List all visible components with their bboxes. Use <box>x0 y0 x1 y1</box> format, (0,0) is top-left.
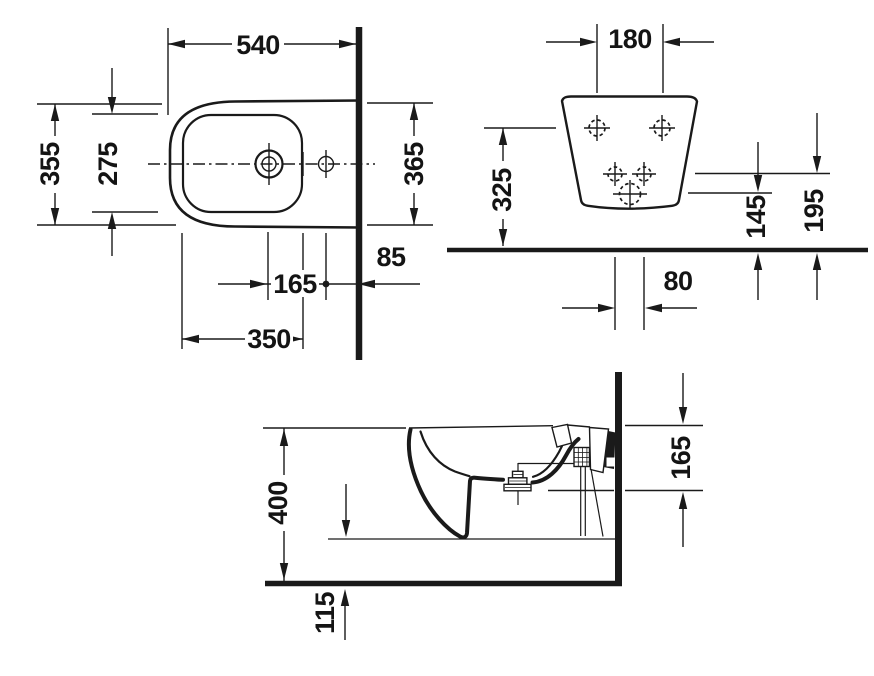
dim-label-540: 540 <box>236 30 280 60</box>
arrowhead <box>580 38 597 46</box>
arrowhead <box>108 97 116 114</box>
arrowhead <box>341 589 349 606</box>
dim-label-195: 195 <box>799 189 829 233</box>
arrowhead <box>339 40 356 48</box>
plan-view: 540 355 275 <box>35 27 433 360</box>
dim-label-275: 275 <box>93 142 123 186</box>
dim-rim-height: 400 <box>263 428 406 581</box>
dim-rim-to-fixing: 165 <box>548 373 703 547</box>
dim-width-at-wall: 365 <box>367 103 433 225</box>
arrowhead <box>754 253 762 270</box>
side-profile-front <box>409 430 503 538</box>
dim-label-365: 365 <box>399 142 429 186</box>
arrowhead <box>813 156 821 173</box>
arrowhead <box>645 304 662 312</box>
arrowhead <box>679 407 687 424</box>
dim-drain-height: 145 <box>741 142 771 300</box>
side-rim-top-edge <box>409 426 553 428</box>
bracket-top-line <box>568 425 591 427</box>
mounting-hole-top-right <box>649 115 675 141</box>
side-drain-fitting <box>504 463 577 505</box>
dim-top-holes-height: 325 <box>484 128 556 246</box>
dim-bottom-hole-spacing: 80 <box>562 257 697 330</box>
arrowhead <box>598 304 615 312</box>
dim-label-165: 165 <box>273 269 317 299</box>
mounting-hole-top-left <box>584 115 610 141</box>
dim-top-hole-spacing: 180 <box>546 24 714 93</box>
dim-label-115: 115 <box>310 591 340 634</box>
dim-dot <box>323 281 330 288</box>
arrowhead <box>182 335 199 343</box>
dim-label-350: 350 <box>247 324 291 354</box>
mounting-box-notch <box>607 458 615 467</box>
dim-label-85: 85 <box>376 242 406 272</box>
dim-label-165-side: 165 <box>666 436 696 480</box>
arrowhead <box>250 280 267 288</box>
arrowhead <box>663 38 680 46</box>
arrowhead <box>679 492 687 509</box>
dim-underside-clearance: 115 <box>310 589 349 640</box>
dim-inner-width: 275 <box>92 68 158 256</box>
dim-label-145: 145 <box>741 195 771 239</box>
dim-label-400: 400 <box>263 481 293 525</box>
arrowhead <box>342 520 350 537</box>
rim-back-section <box>552 425 572 448</box>
arrowhead <box>754 175 762 192</box>
bracket-diagonal-line <box>591 469 603 537</box>
arrowhead <box>280 563 288 580</box>
arrowhead <box>108 212 116 229</box>
arrowhead <box>499 229 507 246</box>
drawing-canvas: 540 355 275 <box>0 0 874 676</box>
technical-drawing: 540 355 275 <box>0 0 874 676</box>
side-bowl-inner-front <box>421 432 470 477</box>
rear-view: 180 325 145 195 <box>447 24 868 330</box>
fixing-hole-left <box>603 162 627 186</box>
side-view: 400 115 165 <box>263 372 703 640</box>
arrowhead <box>51 104 59 121</box>
arrowhead <box>499 128 507 145</box>
dim-tap-to-drain: 165 <box>218 269 356 299</box>
arrowhead <box>168 40 185 48</box>
arrowhead <box>280 429 288 446</box>
dim-drain-to-wall: 85 <box>358 242 420 288</box>
dim-front-to-drain: 350 <box>182 324 303 354</box>
fixing-hole-right <box>632 162 656 186</box>
dim-label-80: 80 <box>663 266 692 296</box>
arrowhead <box>813 253 821 270</box>
dim-label-325: 325 <box>487 168 517 212</box>
arrowhead <box>51 208 59 225</box>
drain-outlet <box>613 180 647 209</box>
side-profile-back-band <box>533 439 579 483</box>
side-mounting-assembly <box>552 425 616 537</box>
dim-fixing-height: 195 <box>799 113 829 300</box>
arrowhead <box>410 208 418 225</box>
underside-pointer <box>342 484 350 537</box>
dim-label-355: 355 <box>35 142 65 186</box>
dim-label-180: 180 <box>608 24 652 54</box>
arrowhead <box>410 103 418 120</box>
